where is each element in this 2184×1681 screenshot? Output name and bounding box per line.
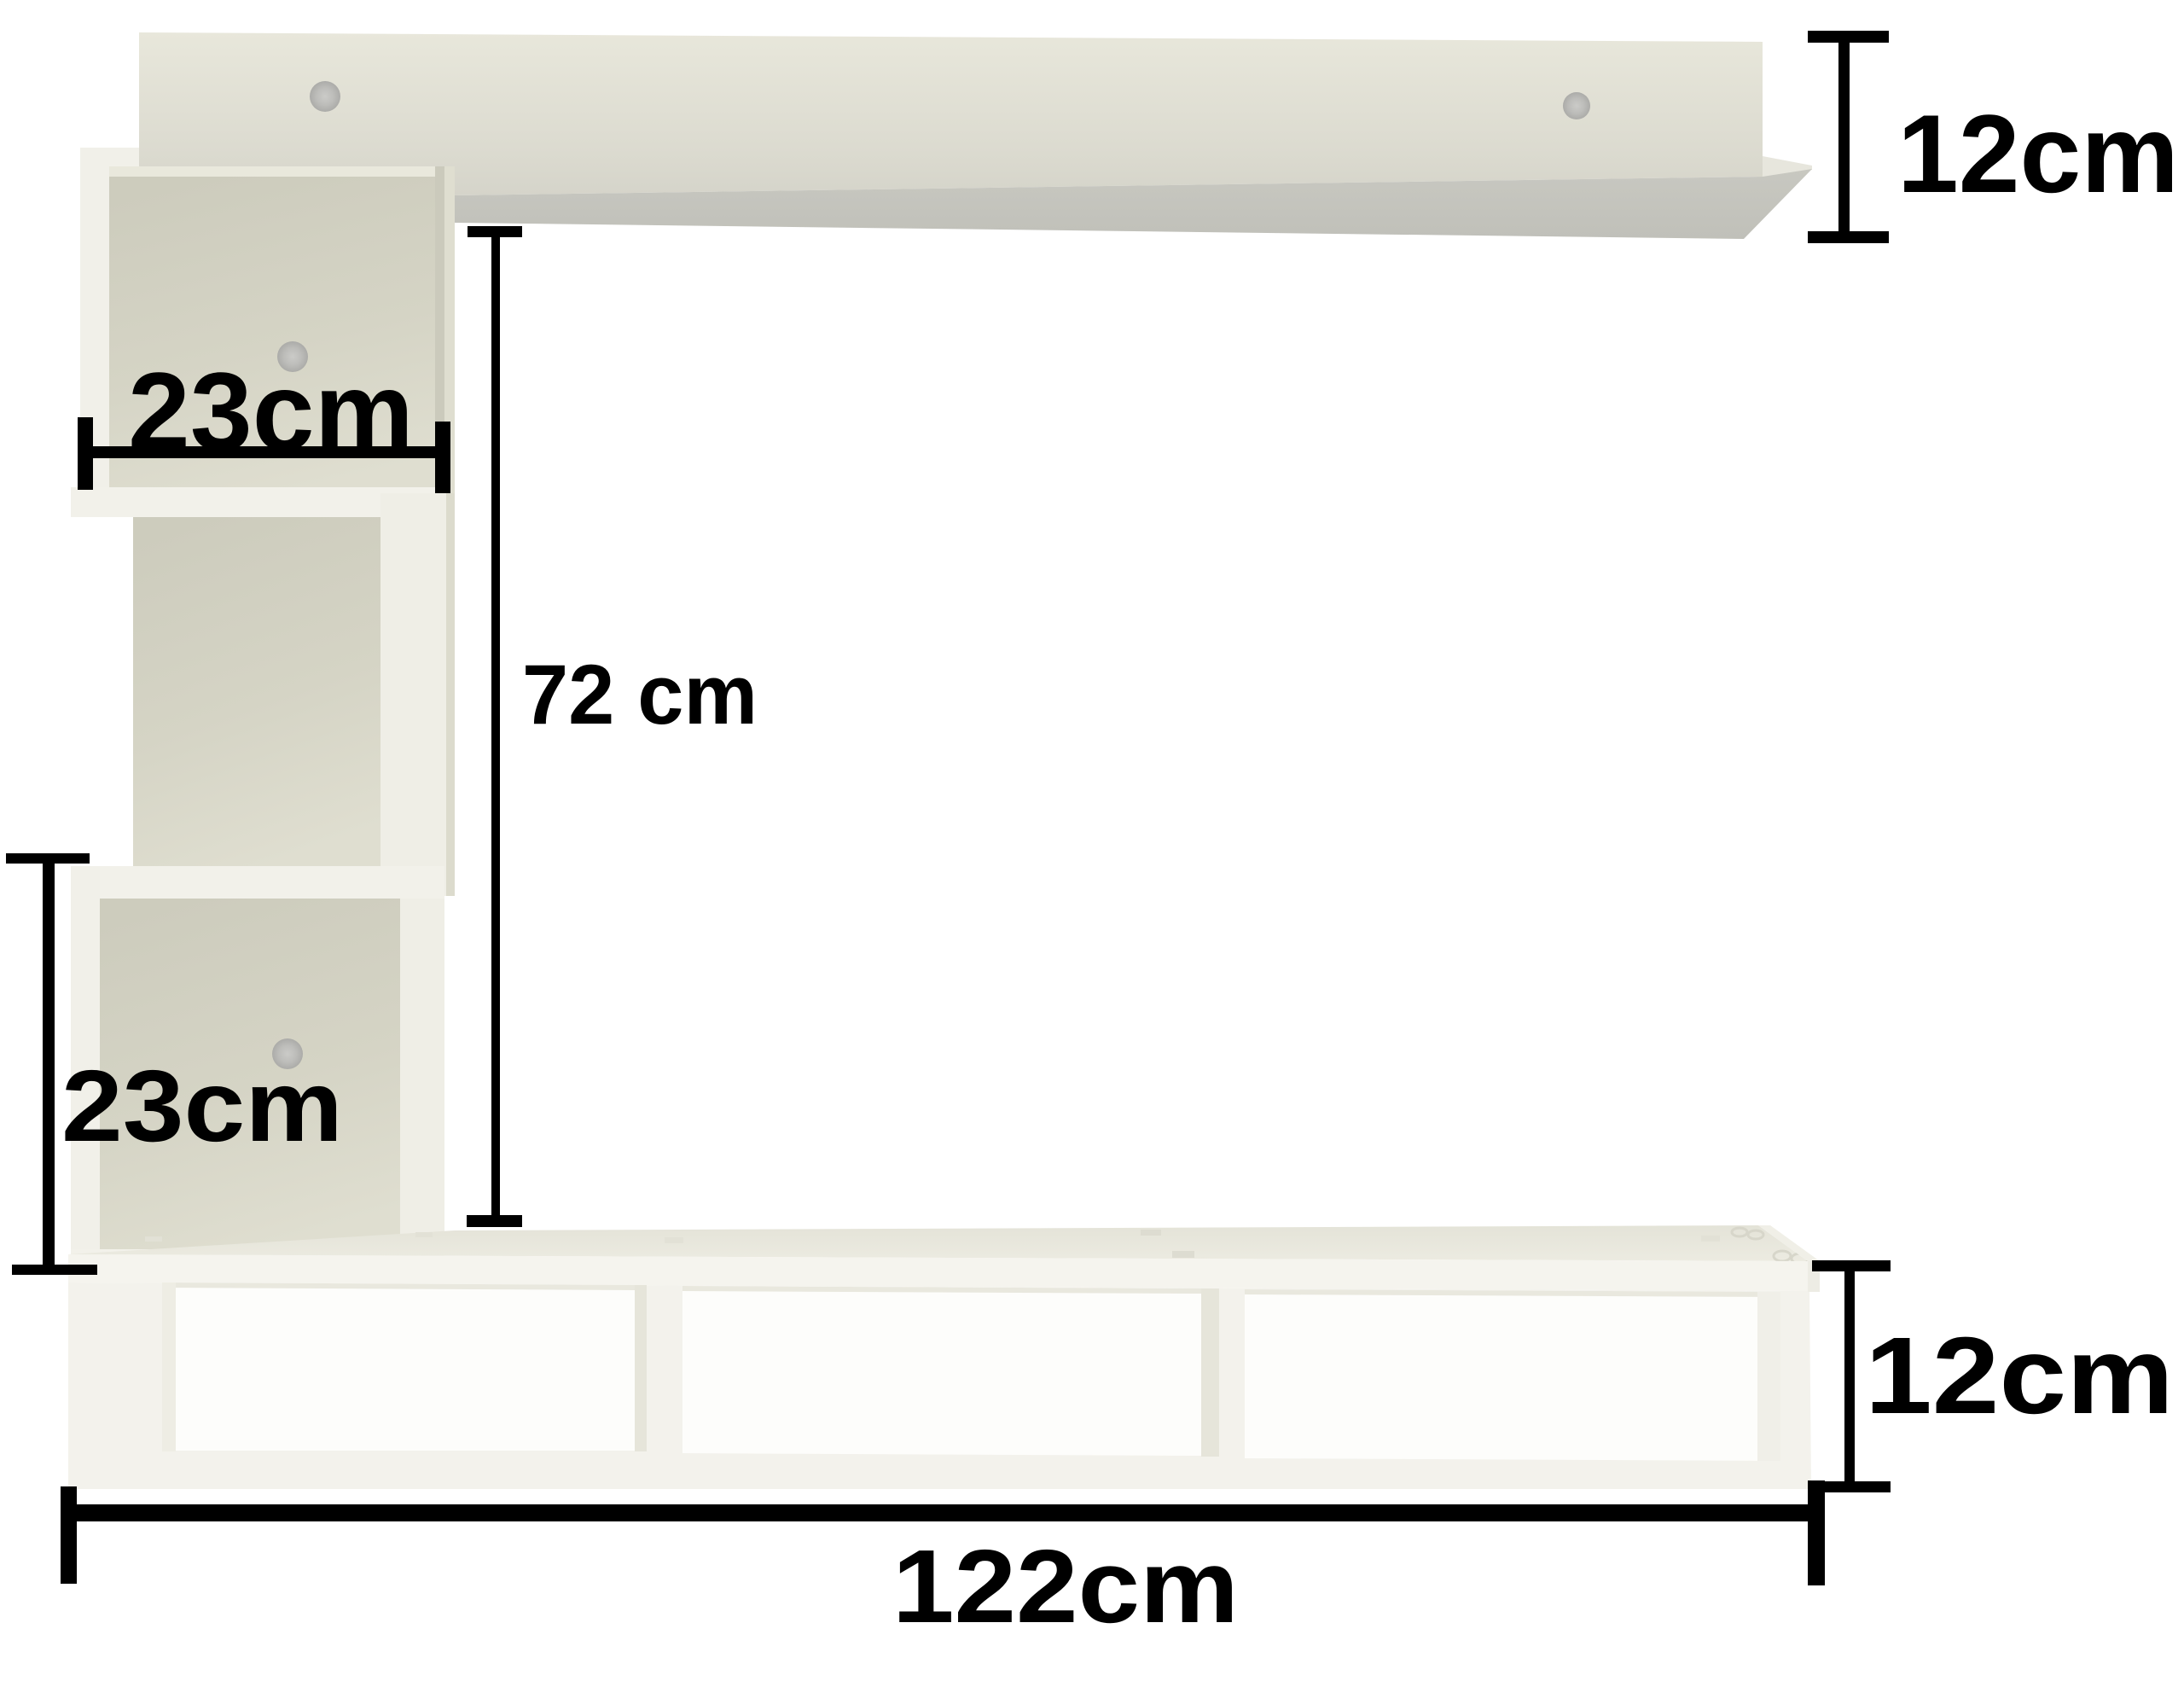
svg-text:23cm: 23cm [128, 349, 414, 474]
svg-text:12cm: 12cm [1897, 91, 2179, 216]
svg-text:12cm: 12cm [1865, 1315, 2174, 1437]
svg-text:72 cm: 72 cm [522, 647, 758, 742]
svg-text:23cm: 23cm [61, 1050, 343, 1163]
svg-text:122cm: 122cm [892, 1528, 1239, 1644]
